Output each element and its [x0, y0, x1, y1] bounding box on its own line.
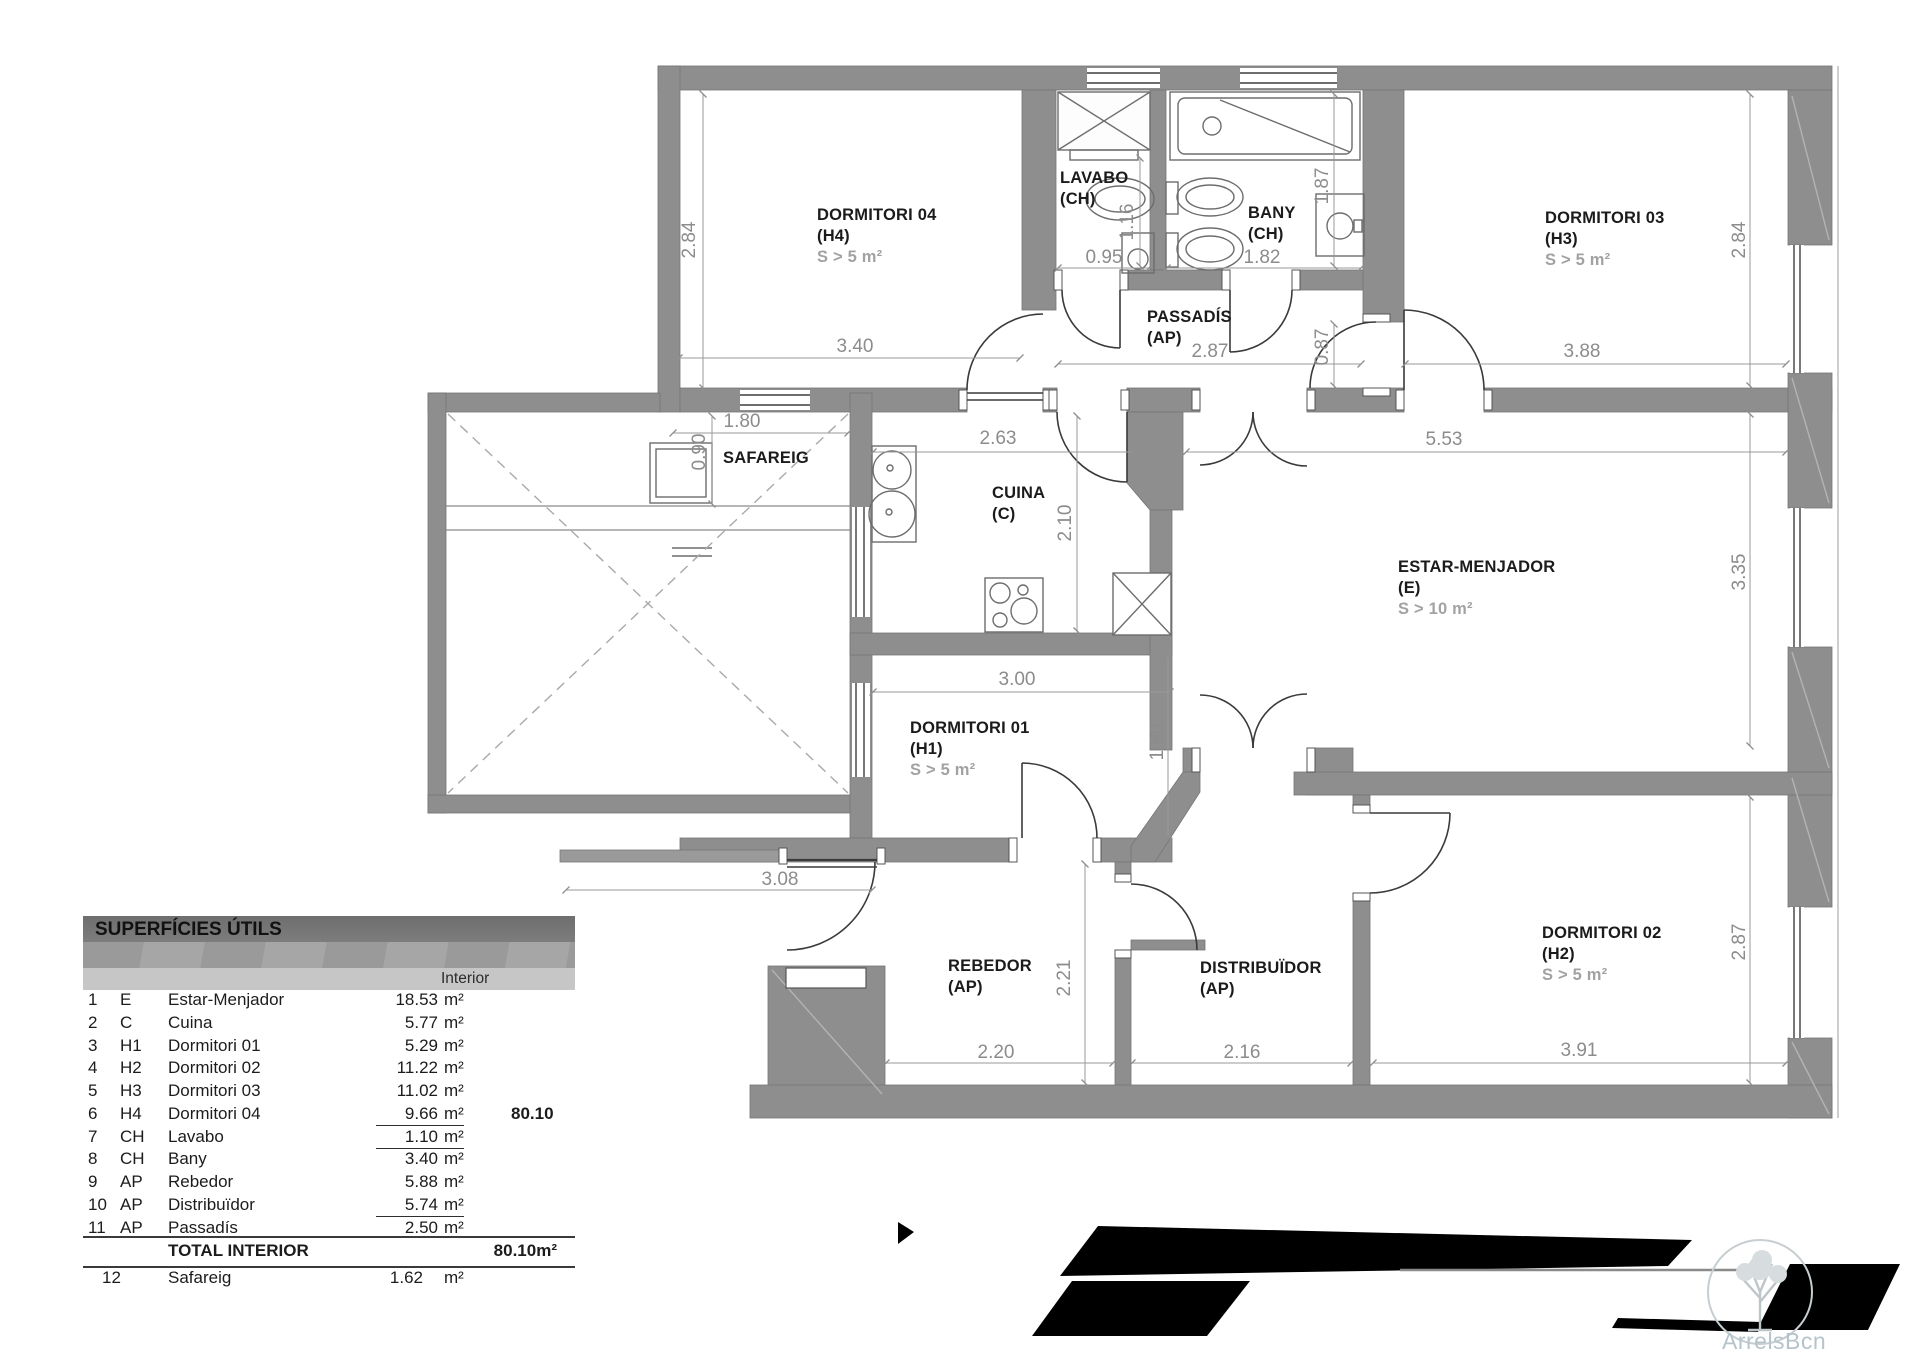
row-name: Distribuïdor — [168, 1195, 255, 1215]
patio-cross — [448, 414, 848, 793]
sum-underline — [376, 1216, 464, 1217]
room-note: S > 5 m² — [1542, 965, 1661, 986]
room-code: (H4) — [817, 226, 936, 247]
table-row: 8 CH Bany 3.40 m² — [83, 1149, 575, 1171]
row-name: Dormitori 01 — [168, 1036, 261, 1056]
bathtub — [1170, 92, 1360, 160]
table-column-band: Interior — [83, 968, 575, 990]
table-row: 10 AP Distribuïdor 5.74 m² — [83, 1195, 575, 1217]
room-name: SAFAREIG — [723, 448, 809, 469]
stair-recess — [786, 968, 866, 988]
room-note: S > 5 m² — [1545, 250, 1664, 271]
room-name: DORMITORI 04 — [817, 205, 936, 226]
dim-d01-w: 3.00 — [999, 669, 1036, 691]
row-unit: m² — [444, 1149, 464, 1169]
row-unit: m² — [444, 990, 464, 1010]
row-num: 10 — [88, 1195, 107, 1215]
total-label: TOTAL INTERIOR — [168, 1241, 309, 1261]
row-num: 7 — [88, 1127, 97, 1147]
table-row: 9 AP Rebedor 5.88 m² — [83, 1172, 575, 1194]
row-unit: m² — [444, 1013, 464, 1033]
row-area: 9.66 — [313, 1104, 438, 1124]
table-row: 2 C Cuina 5.77 m² — [83, 1013, 575, 1035]
room-code: (E) — [1398, 578, 1555, 599]
table-row: 6 H4 Dormitori 04 9.66 m² 80.10 — [83, 1104, 575, 1126]
row-unit: m² — [444, 1127, 464, 1147]
dim-cuina-w: 2.63 — [980, 428, 1017, 450]
table-total-row: TOTAL INTERIOR 80.10m² — [83, 1236, 575, 1268]
room-note: S > 5 m² — [910, 760, 1029, 781]
row-name: Dormitori 04 — [168, 1104, 261, 1124]
dim-estar-w: 5.53 — [1426, 429, 1463, 451]
row-area: 18.53 — [313, 990, 438, 1010]
table-extra-row: 12 Safareig 1.62 m² — [83, 1268, 575, 1290]
dim-cuina-d: 2.10 — [1055, 505, 1077, 542]
dim-rebedor-w: 2.20 — [978, 1042, 1015, 1064]
table-row: 3 H1 Dormitori 01 5.29 m² — [83, 1036, 575, 1058]
room-note: S > 10 m² — [1398, 599, 1555, 620]
room-name: DORMITORI 01 — [910, 718, 1029, 739]
row-subtotal: 80.10 — [511, 1104, 554, 1124]
row-code: H3 — [120, 1081, 142, 1101]
row-num: 6 — [88, 1104, 97, 1124]
row-name: Safareig — [168, 1268, 231, 1288]
row-code: AP — [120, 1172, 143, 1192]
row-area: 3.40 — [313, 1149, 438, 1169]
row-code: H2 — [120, 1058, 142, 1078]
table-row: 7 CH Lavabo 1.10 m² — [83, 1127, 575, 1149]
room-name: CUINA — [992, 483, 1045, 504]
row-name: Rebedor — [168, 1172, 233, 1192]
row-num: 8 — [88, 1149, 97, 1169]
room-label-rebedor: REBEDOR (AP) — [948, 956, 1032, 998]
room-name: LAVABO — [1060, 168, 1128, 189]
row-name: Cuina — [168, 1013, 212, 1033]
dim-d02-h: 2.87 — [1729, 924, 1751, 961]
row-unit: m² — [444, 1268, 464, 1288]
row-code: C — [120, 1013, 132, 1033]
dim-safareig-w: 1.80 — [724, 411, 761, 433]
row-code: CH — [120, 1127, 145, 1147]
row-name: Dormitori 02 — [168, 1058, 261, 1078]
room-label-estar: ESTAR-MENJADOR (E) S > 10 m² — [1398, 557, 1555, 620]
row-unit: m² — [444, 1081, 464, 1101]
dim-d01-h: 1.80 — [1147, 724, 1169, 761]
dim-safareig-d: 0.90 — [689, 434, 711, 471]
room-label-cuina: CUINA (C) — [992, 483, 1045, 525]
dim-distribuidor-w: 2.16 — [1224, 1042, 1261, 1064]
row-unit: m² — [444, 1218, 464, 1238]
row-code: H4 — [120, 1104, 142, 1124]
row-num: 12 — [102, 1268, 121, 1288]
row-area: 5.29 — [313, 1036, 438, 1056]
room-label-distribuidor: DISTRIBUÏDOR (AP) — [1200, 958, 1322, 1000]
row-area: 2.50 — [313, 1218, 438, 1238]
room-label-dormitori02: DORMITORI 02 (H2) S > 5 m² — [1542, 923, 1661, 986]
safareig-counter-lines — [446, 506, 850, 530]
room-code: (H1) — [910, 739, 1029, 760]
room-label-dormitori04: DORMITORI 04 (H4) S > 5 m² — [817, 205, 936, 268]
room-name: PASSADÍS — [1147, 307, 1232, 328]
table-title: SUPERFÍCIES ÚTILS — [95, 919, 282, 941]
room-code: (AP) — [1200, 979, 1322, 1000]
cooktop — [985, 578, 1043, 632]
room-label-dormitori03: DORMITORI 03 (H3) S > 5 m² — [1545, 208, 1664, 271]
row-name: Estar-Menjador — [168, 990, 284, 1010]
row-unit: m² — [444, 1104, 464, 1124]
dim-passadis-w: 2.87 — [1192, 341, 1229, 363]
room-note: S > 5 m² — [817, 247, 936, 268]
table-header-band: SUPERFÍCIES ÚTILS — [83, 916, 575, 942]
shower-tray — [1058, 92, 1150, 160]
room-code: (CH) — [1248, 224, 1296, 245]
dim-lavabo-d: 1.16 — [1117, 204, 1139, 241]
row-code: AP — [120, 1218, 143, 1238]
table-row: 4 H2 Dormitori 02 11.22 m² — [83, 1058, 575, 1080]
dim-d04-h: 2.84 — [679, 222, 701, 259]
row-area: 11.02 — [313, 1081, 438, 1101]
row-area: 5.74 — [313, 1195, 438, 1215]
row-num: 5 — [88, 1081, 97, 1101]
row-code: AP — [120, 1195, 143, 1215]
dim-bany-w: 1.82 — [1244, 247, 1281, 269]
dim-d02-w: 3.91 — [1561, 1040, 1598, 1062]
watermark-text: ArrelsBcn — [1722, 1328, 1822, 1355]
dim-d03-h: 2.84 — [1729, 222, 1751, 259]
dim-lavabo-w: 0.95 — [1086, 247, 1123, 269]
row-unit: m² — [444, 1036, 464, 1056]
total-value: 80.10m² — [413, 1241, 557, 1261]
room-name: REBEDOR — [948, 956, 1032, 977]
row-unit: m² — [444, 1195, 464, 1215]
room-name: DORMITORI 03 — [1545, 208, 1664, 229]
room-label-dormitori01: DORMITORI 01 (H1) S > 5 m² — [910, 718, 1029, 781]
row-area: 1.10 — [313, 1127, 438, 1147]
room-label-bany: BANY (CH) — [1248, 203, 1296, 245]
room-name: DISTRIBUÏDOR — [1200, 958, 1322, 979]
table-row: 1 E Estar-Menjador 18.53 m² — [83, 990, 575, 1012]
room-label-safareig: SAFAREIG — [723, 448, 809, 469]
row-name: Dormitori 03 — [168, 1081, 261, 1101]
room-code: (H2) — [1542, 944, 1661, 965]
row-num: 2 — [88, 1013, 97, 1033]
room-name: DORMITORI 02 — [1542, 923, 1661, 944]
dim-entry-w: 3.08 — [762, 869, 799, 891]
floorplan-page: DORMITORI 04 (H4) S > 5 m² LAVABO (CH) B… — [0, 0, 1920, 1357]
dim-d04-w: 3.40 — [837, 336, 874, 358]
row-num: 4 — [88, 1058, 97, 1078]
dim-d03-w: 3.88 — [1564, 341, 1601, 363]
row-area: 5.88 — [313, 1172, 438, 1192]
row-num: 3 — [88, 1036, 97, 1056]
row-code: E — [120, 990, 131, 1010]
sum-underline — [376, 1125, 464, 1126]
toilet-bidet — [1166, 178, 1243, 270]
dim-estar-h: 3.35 — [1729, 554, 1751, 591]
row-area: 1.62 — [313, 1268, 423, 1288]
table-row: 5 H3 Dormitori 03 11.02 m² — [83, 1081, 575, 1103]
room-name: ESTAR-MENJADOR — [1398, 557, 1555, 578]
row-area: 11.22 — [313, 1058, 438, 1078]
kitchen-sink — [869, 446, 916, 542]
row-num: 9 — [88, 1172, 97, 1192]
row-name: Bany — [168, 1149, 207, 1169]
room-code: (C) — [992, 504, 1045, 525]
shaft-box — [1113, 573, 1171, 635]
row-name: Lavabo — [168, 1127, 224, 1147]
row-area: 5.77 — [313, 1013, 438, 1033]
dim-rebedor-d: 2.21 — [1054, 960, 1076, 997]
row-unit: m² — [444, 1058, 464, 1078]
row-code: CH — [120, 1149, 145, 1169]
table-column-interior: Interior — [441, 970, 489, 988]
row-code: H1 — [120, 1036, 142, 1056]
row-name: Passadís — [168, 1218, 238, 1238]
row-num: 11 — [88, 1218, 106, 1238]
row-num: 1 — [88, 990, 97, 1010]
room-code: (H3) — [1545, 229, 1664, 250]
row-unit: m² — [444, 1172, 464, 1192]
dim-passadis-d: 0.87 — [1312, 329, 1334, 366]
dim-bany-d: 1.87 — [1312, 168, 1334, 205]
table-band-decoration — [83, 942, 575, 968]
room-code: (AP) — [948, 977, 1032, 998]
room-name: BANY — [1248, 203, 1296, 224]
